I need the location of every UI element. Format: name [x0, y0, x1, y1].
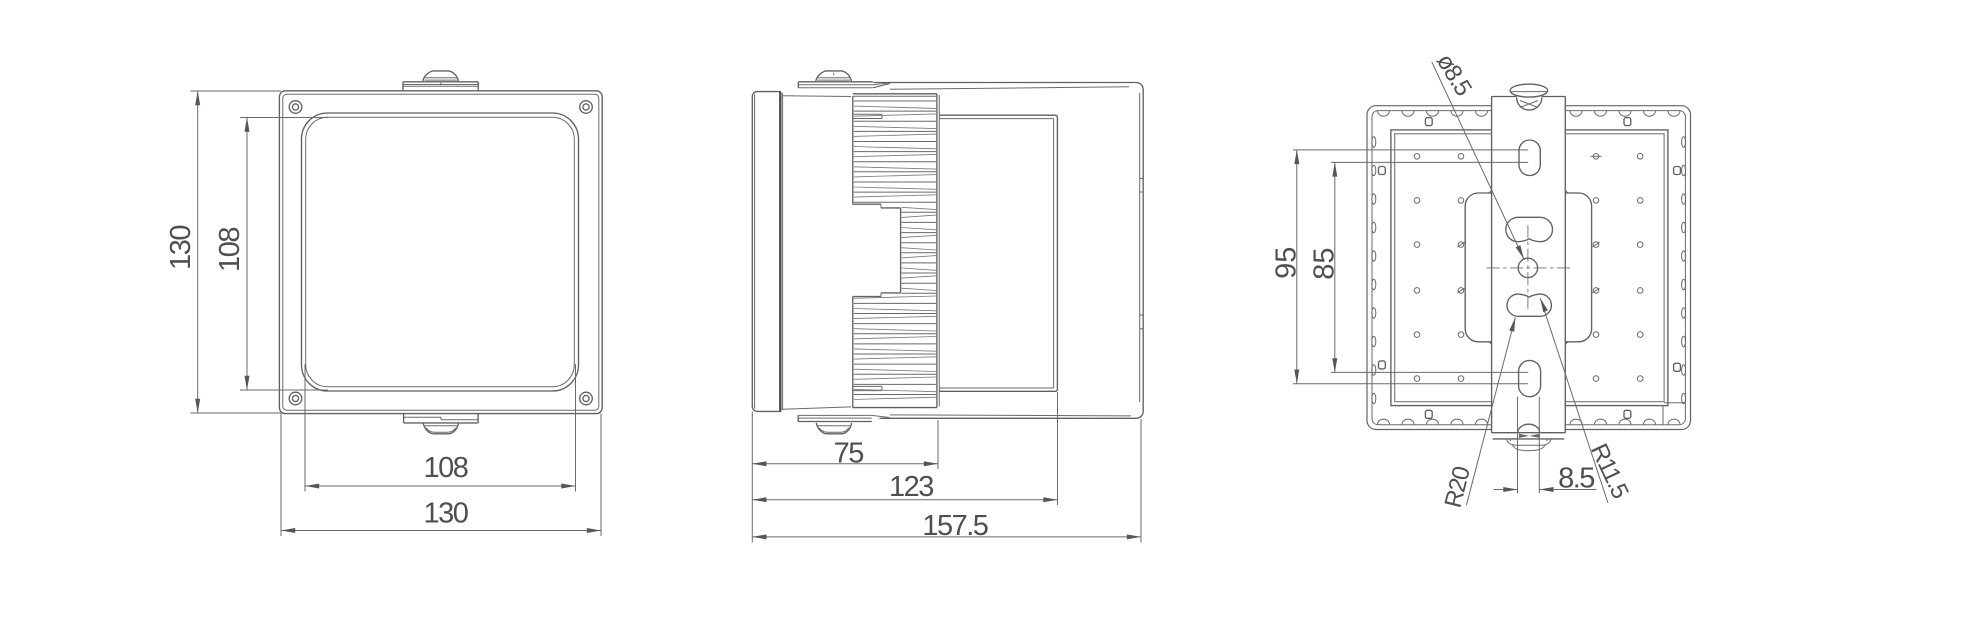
svg-text:R20: R20 — [1440, 464, 1476, 511]
svg-text:108: 108 — [424, 452, 468, 484]
svg-text:75: 75 — [834, 438, 864, 470]
svg-text:123: 123 — [889, 471, 933, 503]
svg-text:130: 130 — [165, 226, 197, 270]
svg-text:95: 95 — [1270, 247, 1302, 279]
svg-text:130: 130 — [424, 498, 468, 530]
svg-text:85: 85 — [1308, 247, 1340, 279]
svg-text:157.5: 157.5 — [922, 510, 987, 542]
svg-text:8.5: 8.5 — [1558, 463, 1594, 495]
svg-text:108: 108 — [214, 228, 246, 272]
